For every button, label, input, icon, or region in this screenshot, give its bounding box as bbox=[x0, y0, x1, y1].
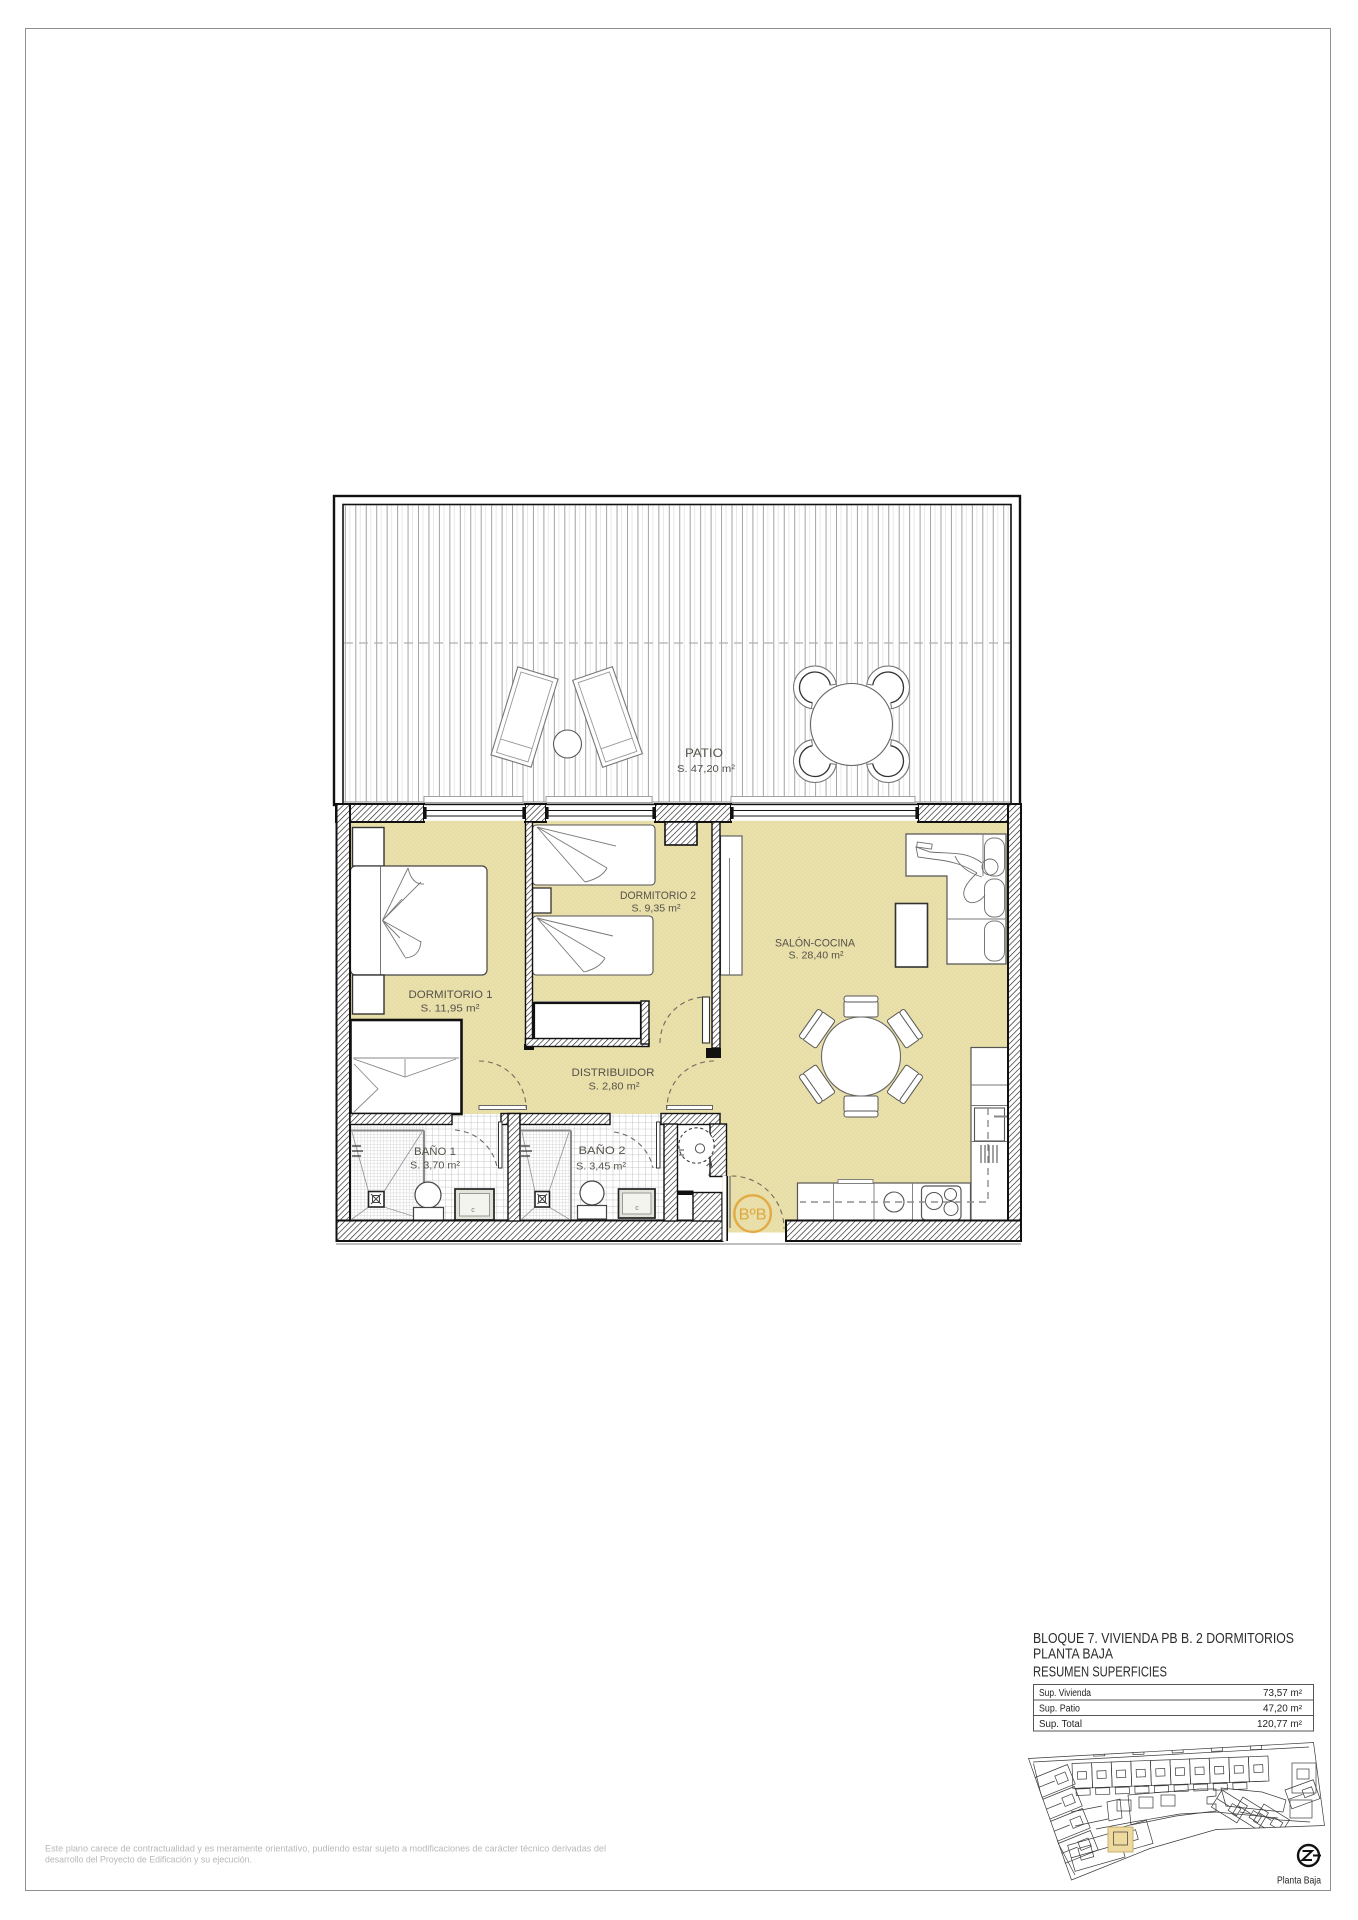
svg-text:S. 3,70 m²: S. 3,70 m² bbox=[410, 1160, 461, 1172]
svg-text:S. 28,40 m²: S. 28,40 m² bbox=[789, 950, 845, 962]
svg-text:SALÓN-COCINA: SALÓN-COCINA bbox=[775, 937, 856, 950]
svg-text:BºB: BºB bbox=[739, 1207, 767, 1224]
svg-text:BLOQUE 7. VIVIENDA PB B. 2 DOR: BLOQUE 7. VIVIENDA PB B. 2 DORMITORIOS bbox=[1033, 1630, 1294, 1647]
svg-text:PLANTA BAJA: PLANTA BAJA bbox=[1033, 1646, 1114, 1663]
svg-text:RESUMEN SUPERFICIES: RESUMEN SUPERFICIES bbox=[1033, 1664, 1167, 1681]
svg-text:DORMITORIO 2: DORMITORIO 2 bbox=[620, 890, 696, 902]
svg-text:S. 9,35 m²: S. 9,35 m² bbox=[632, 903, 682, 915]
svg-text:desarrollo del Proyecto de Edi: desarrollo del Proyecto de Edificación y… bbox=[45, 1855, 252, 1866]
svg-text:PATIO: PATIO bbox=[685, 748, 723, 760]
svg-text:Sup. Vivienda: Sup. Vivienda bbox=[1039, 1688, 1091, 1699]
svg-text:DORMITORIO 1: DORMITORIO 1 bbox=[409, 989, 493, 1001]
svg-text:S. 47,20 m²: S. 47,20 m² bbox=[677, 763, 736, 775]
svg-text:BAÑO 1: BAÑO 1 bbox=[414, 1145, 456, 1158]
svg-text:Planta Baja: Planta Baja bbox=[1277, 1875, 1321, 1887]
svg-text:BAÑO 2: BAÑO 2 bbox=[579, 1144, 626, 1157]
svg-text:Sup. Patio: Sup. Patio bbox=[1039, 1704, 1080, 1715]
svg-text:DISTRIBUIDOR: DISTRIBUIDOR bbox=[572, 1067, 655, 1079]
svg-text:47,20 m²: 47,20 m² bbox=[1263, 1704, 1303, 1715]
svg-text:S. 11,95 m²: S. 11,95 m² bbox=[421, 1003, 481, 1015]
svg-text:S. 3,45 m²: S. 3,45 m² bbox=[576, 1161, 627, 1173]
svg-text:Sup. Total: Sup. Total bbox=[1039, 1719, 1082, 1730]
svg-text:c: c bbox=[471, 1207, 475, 1214]
svg-text:120,77 m²: 120,77 m² bbox=[1257, 1719, 1303, 1730]
svg-text:S. 2,80 m²: S. 2,80 m² bbox=[589, 1081, 641, 1093]
svg-text:73,57 m²: 73,57 m² bbox=[1263, 1688, 1303, 1699]
svg-text:c: c bbox=[635, 1205, 639, 1212]
svg-text:Este plano carece de contractu: Este plano carece de contractualidad y e… bbox=[45, 1844, 606, 1855]
